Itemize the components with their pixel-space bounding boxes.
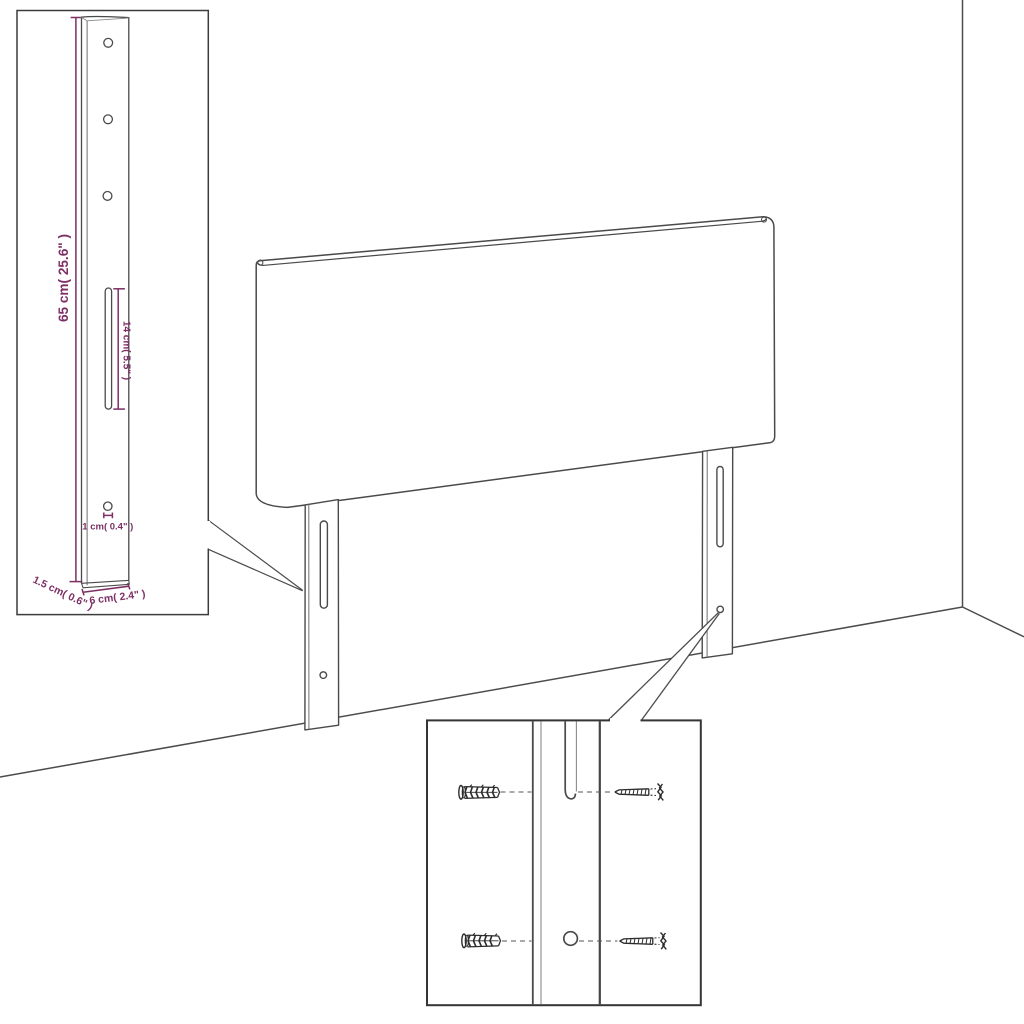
svg-text:1 cm( 0.4" ): 1 cm( 0.4" ) [82, 522, 133, 533]
svg-text:14 cm( 5.5" ): 14 cm( 5.5" ) [120, 321, 131, 380]
svg-text:65 cm( 25.6" ): 65 cm( 25.6" ) [56, 234, 71, 322]
